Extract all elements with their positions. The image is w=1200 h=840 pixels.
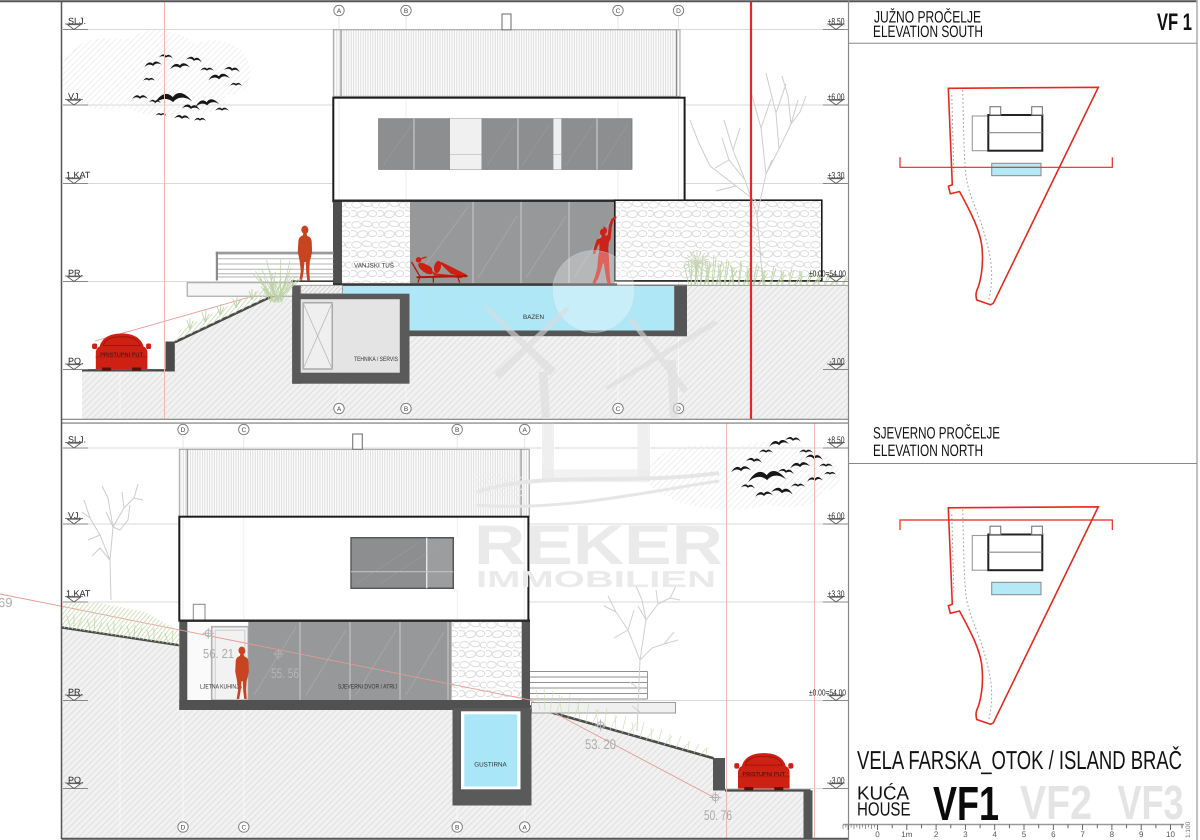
svg-text:5: 5 bbox=[1022, 830, 1027, 839]
svg-text:VANJSKI TUŠ: VANJSKI TUŠ bbox=[354, 262, 394, 270]
svg-text:D: D bbox=[181, 427, 186, 434]
svg-text:0: 0 bbox=[875, 830, 880, 839]
svg-text:C: C bbox=[616, 8, 621, 15]
svg-text:56. 21: 56. 21 bbox=[203, 646, 234, 661]
svg-text:4: 4 bbox=[992, 830, 997, 839]
svg-text:SJEVERNO PROČELJE: SJEVERNO PROČELJE bbox=[873, 424, 1000, 443]
svg-text:VF3: VF3 bbox=[1118, 777, 1184, 830]
svg-text:B: B bbox=[404, 406, 408, 413]
svg-text:1m: 1m bbox=[901, 830, 912, 839]
svg-text:C: C bbox=[616, 406, 621, 413]
svg-text:C: C bbox=[241, 427, 246, 434]
svg-text:B: B bbox=[455, 427, 459, 434]
svg-text:VF 1: VF 1 bbox=[1157, 9, 1192, 36]
svg-text:50. 76: 50. 76 bbox=[704, 807, 732, 823]
svg-text:GUSTIRNA: GUSTIRNA bbox=[474, 762, 507, 769]
svg-text:D: D bbox=[181, 824, 186, 831]
svg-text:7: 7 bbox=[1080, 830, 1085, 839]
svg-text:VF2: VF2 bbox=[1020, 777, 1092, 830]
svg-text:A: A bbox=[523, 427, 528, 434]
svg-text:D: D bbox=[676, 8, 681, 15]
svg-text:A: A bbox=[337, 406, 342, 413]
svg-text:HOUSE: HOUSE bbox=[857, 800, 911, 821]
svg-text:A: A bbox=[523, 824, 528, 831]
svg-text:VF1: VF1 bbox=[933, 778, 999, 831]
svg-text:10: 10 bbox=[1166, 830, 1175, 839]
svg-text:69: 69 bbox=[0, 595, 12, 610]
svg-text:8: 8 bbox=[1110, 830, 1115, 839]
svg-text:ELEVATION NORTH: ELEVATION NORTH bbox=[873, 442, 983, 460]
svg-text:LJETNA KUHINJA: LJETNA KUHINJA bbox=[200, 684, 243, 691]
svg-text:53. 20: 53. 20 bbox=[585, 736, 616, 752]
svg-text:C: C bbox=[241, 824, 246, 831]
svg-text:9: 9 bbox=[1139, 830, 1144, 839]
svg-text:1:100: 1:100 bbox=[1185, 821, 1192, 838]
svg-text:IMMOBILIEN: IMMOBILIEN bbox=[476, 566, 716, 592]
svg-text:B: B bbox=[404, 8, 408, 15]
svg-text:ELEVATION SOUTH: ELEVATION SOUTH bbox=[873, 23, 983, 41]
svg-text:VELA FARSKA_OTOK / ISLAND BRAČ: VELA FARSKA_OTOK / ISLAND BRAČ bbox=[857, 745, 1182, 775]
svg-text:BAZEN: BAZEN bbox=[523, 314, 544, 321]
svg-text:TEHNIKA / SERVIS: TEHNIKA / SERVIS bbox=[354, 356, 398, 363]
svg-text:3: 3 bbox=[963, 830, 968, 839]
svg-text:SJEVERNI DVOR / ATRIJ: SJEVERNI DVOR / ATRIJ bbox=[338, 684, 397, 691]
svg-text:55. 56: 55. 56 bbox=[271, 665, 299, 681]
svg-text:6: 6 bbox=[1051, 830, 1056, 839]
svg-text:2: 2 bbox=[934, 830, 939, 839]
svg-text:B: B bbox=[455, 824, 459, 831]
svg-text:A: A bbox=[337, 8, 342, 15]
